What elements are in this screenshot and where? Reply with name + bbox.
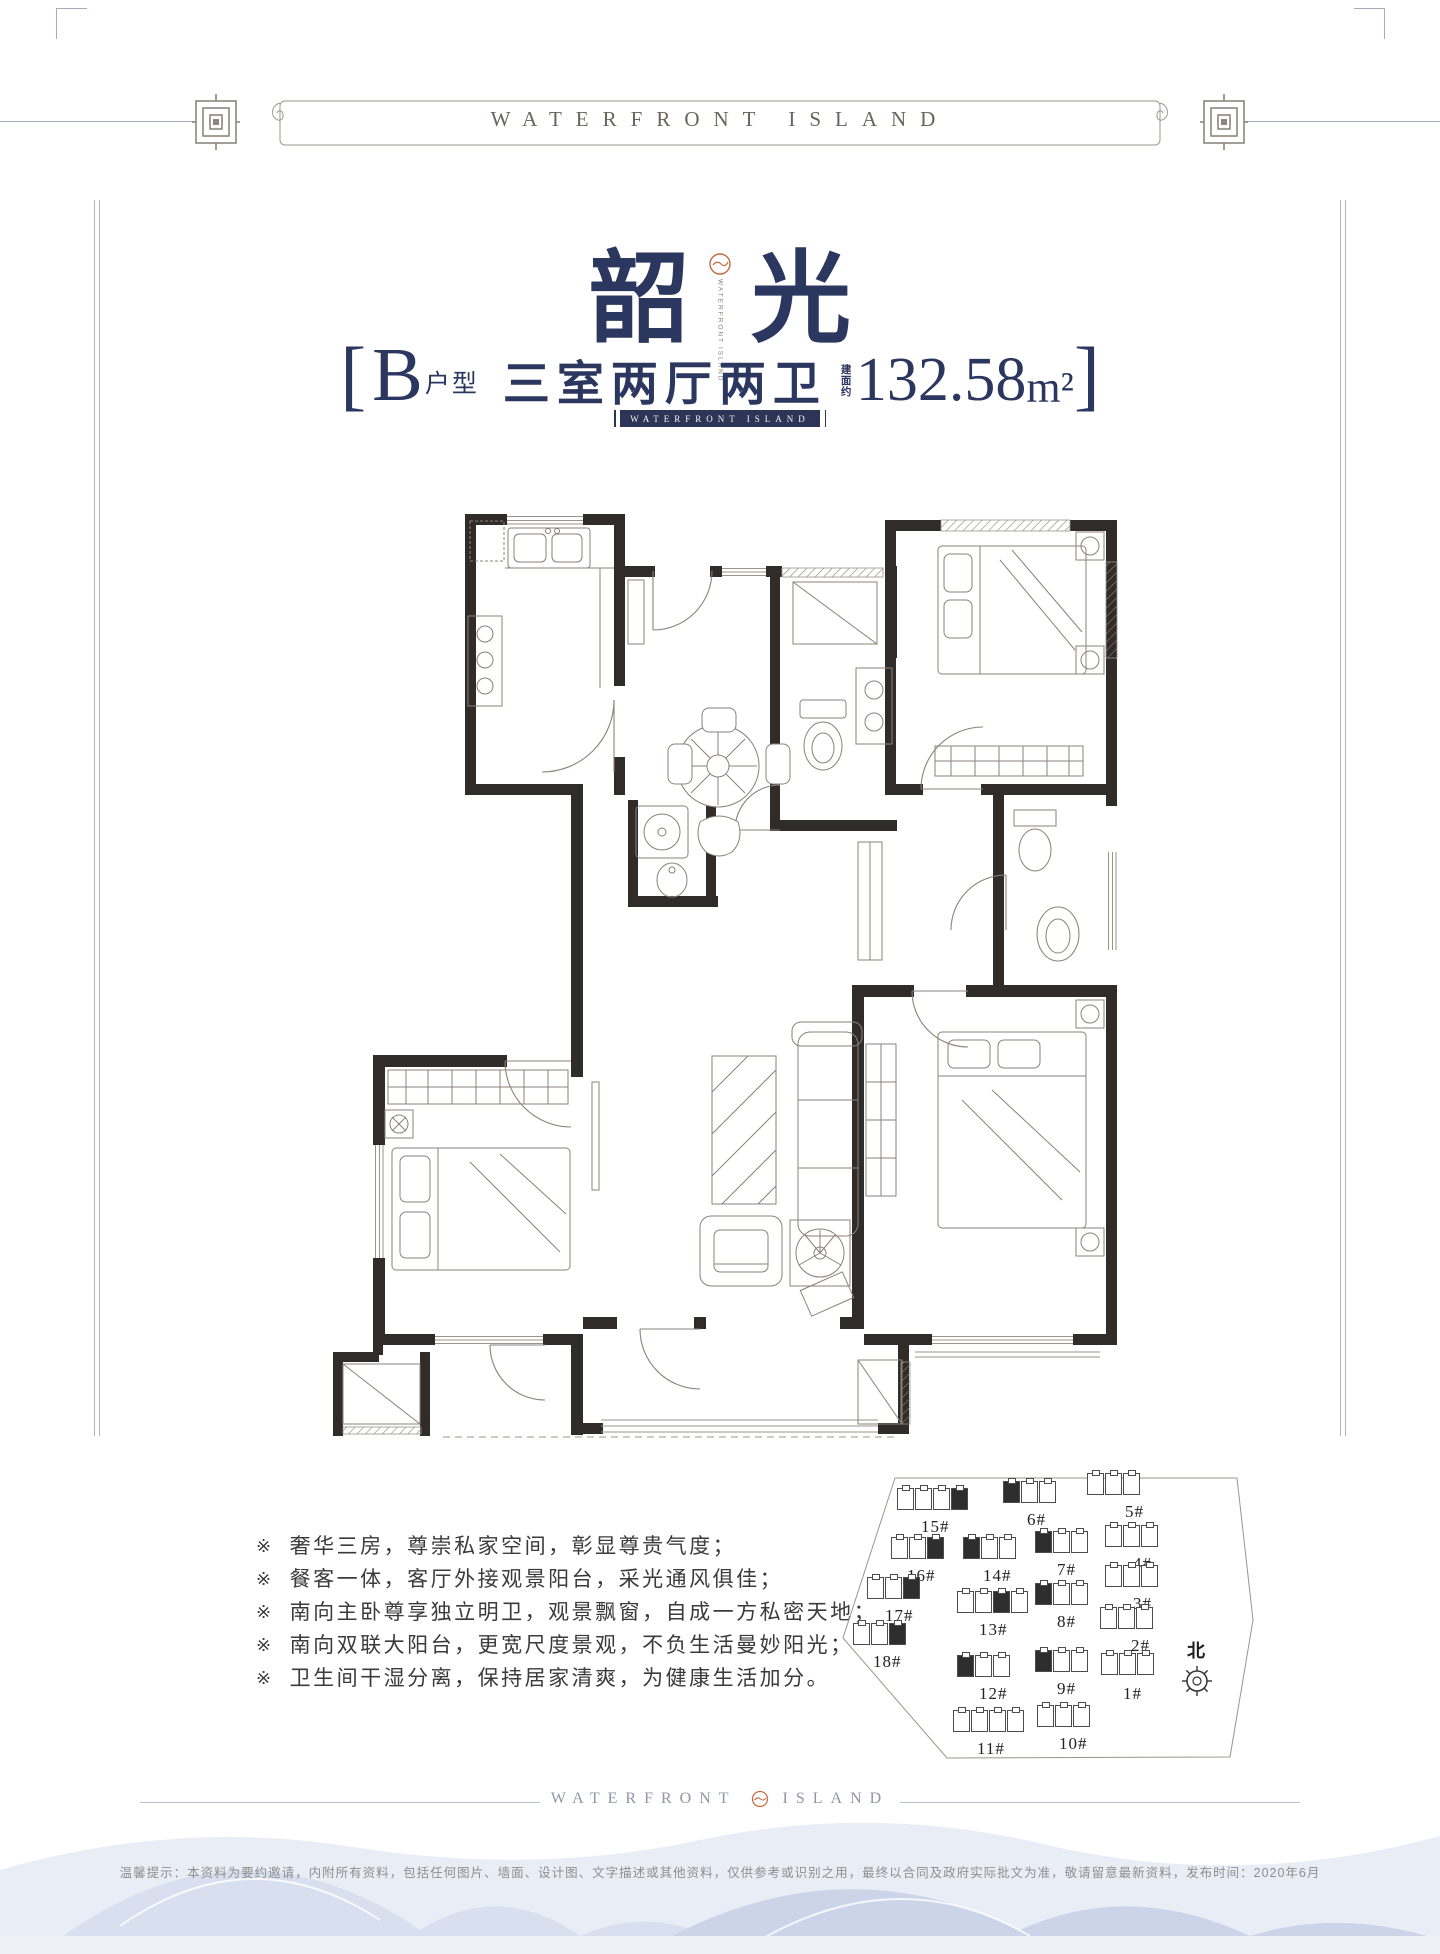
sofa-icon bbox=[798, 1032, 858, 1236]
building-unit bbox=[1071, 1650, 1088, 1672]
storage-room-icon bbox=[793, 582, 877, 644]
building-unit bbox=[1105, 1473, 1122, 1495]
tv-icon bbox=[592, 1082, 599, 1190]
building-unit bbox=[1011, 1591, 1028, 1613]
building-unit bbox=[1119, 1653, 1136, 1675]
armchair-icon bbox=[700, 1216, 782, 1286]
banner-title: WATERFRONT ISLAND bbox=[268, 107, 1172, 132]
building-icon-7 bbox=[1035, 1531, 1088, 1553]
building-icon-3 bbox=[1105, 1565, 1158, 1587]
master-bedroom-icons bbox=[385, 1070, 570, 1270]
knot-ornament-right bbox=[1200, 94, 1248, 150]
unit-letter: B bbox=[372, 345, 423, 406]
building-label: 18# bbox=[873, 1652, 902, 1672]
master-bath-icons bbox=[1014, 810, 1079, 961]
building-unit bbox=[993, 1591, 1010, 1613]
building-icon-17 bbox=[867, 1577, 920, 1599]
entry-cabinet-icon bbox=[628, 580, 644, 644]
area-unit: m² bbox=[1026, 370, 1073, 406]
title-char-right: 光 bbox=[751, 250, 851, 350]
building-unit bbox=[957, 1655, 974, 1677]
building-unit bbox=[1035, 1531, 1052, 1553]
building-unit bbox=[1073, 1705, 1090, 1727]
building-icon-1 bbox=[1101, 1653, 1154, 1675]
unit-word: 户型 bbox=[425, 364, 479, 400]
building-label: 5# bbox=[1125, 1502, 1144, 1522]
footer-logo-icon bbox=[751, 1790, 769, 1808]
building-icon-18 bbox=[853, 1623, 906, 1645]
building-unit bbox=[1123, 1565, 1140, 1587]
building-unit bbox=[1053, 1650, 1070, 1672]
building-icon-11 bbox=[953, 1710, 1024, 1732]
feature-text: 卫生间干湿分离，保持居家清爽，为健康生活加分。 bbox=[290, 1668, 831, 1689]
toilet-icon bbox=[800, 700, 846, 770]
frame-corner-top-left bbox=[56, 8, 87, 39]
ribbon-banner: WATERFRONT ISLAND bbox=[620, 410, 820, 427]
building-icon-5 bbox=[1087, 1473, 1140, 1495]
building-label: 14# bbox=[983, 1566, 1012, 1586]
unit-subtitle: [ B 户型 三室两厅两卫 建面约 132.58 m² ] bbox=[0, 345, 1440, 406]
feature-marker: ※ bbox=[256, 1668, 274, 1689]
building-unit bbox=[1053, 1531, 1070, 1553]
building-unit bbox=[1101, 1653, 1118, 1675]
building-unit bbox=[927, 1537, 944, 1559]
building-label: 1# bbox=[1123, 1684, 1142, 1704]
footer-brand-left: WATERFRONT bbox=[551, 1790, 737, 1808]
feature-marker: ※ bbox=[256, 1602, 274, 1623]
banner-rule-right bbox=[1246, 121, 1440, 122]
building-unit bbox=[975, 1655, 992, 1677]
building-unit bbox=[1136, 1607, 1153, 1629]
building-unit bbox=[1105, 1565, 1122, 1587]
feature-item: ※奢华三房，尊崇私家空间，彰显尊贵气度； bbox=[256, 1536, 877, 1557]
building-unit bbox=[891, 1537, 908, 1559]
feature-item: ※南向主卧尊享独立明卫，观景飘窗，自成一方私密天地； bbox=[256, 1602, 877, 1623]
building-icon-8 bbox=[1035, 1583, 1088, 1605]
building-unit bbox=[1035, 1650, 1052, 1672]
building-label: 9# bbox=[1057, 1679, 1076, 1699]
building-unit bbox=[1055, 1705, 1072, 1727]
title-char-left: 韶 bbox=[589, 250, 689, 350]
building-icon-6 bbox=[1003, 1481, 1056, 1503]
building-unit bbox=[971, 1710, 988, 1732]
building-unit bbox=[1100, 1607, 1117, 1629]
mountain-art bbox=[0, 1740, 1440, 1954]
feature-text: 餐客一体，客厅外接观景阳台，采光通风俱佳； bbox=[290, 1569, 784, 1590]
bracket-open: [ bbox=[340, 345, 366, 406]
building-icon-13 bbox=[957, 1591, 1028, 1613]
building-icon-14 bbox=[963, 1537, 1016, 1559]
area-label: 建面约 bbox=[841, 365, 854, 398]
building-unit bbox=[1137, 1653, 1154, 1675]
building-unit bbox=[957, 1591, 974, 1613]
compass-wheel-icon bbox=[1179, 1663, 1215, 1699]
building-unit bbox=[933, 1488, 950, 1510]
feature-item: ※餐客一体，客厅外接观景阳台，采光通风俱佳； bbox=[256, 1569, 877, 1590]
building-unit bbox=[1141, 1565, 1158, 1587]
feature-marker: ※ bbox=[256, 1569, 274, 1590]
building-icon-12 bbox=[957, 1655, 1010, 1677]
building-unit bbox=[1035, 1583, 1052, 1605]
building-unit bbox=[1021, 1481, 1038, 1503]
brand-vertical-text-1: WATERFRONT bbox=[717, 279, 724, 344]
area-value: 132.58 bbox=[856, 356, 1027, 406]
building-unit bbox=[963, 1537, 980, 1559]
kitchen-sink-icon bbox=[508, 528, 590, 568]
brand-circle-icon bbox=[708, 252, 732, 276]
building-unit bbox=[1141, 1525, 1158, 1547]
living-room-icons bbox=[592, 1022, 862, 1316]
building-unit bbox=[853, 1623, 870, 1645]
laundry-icon bbox=[636, 806, 688, 897]
feature-list: ※奢华三房，尊崇私家空间，彰显尊贵气度；※餐客一体，客厅外接观景阳台，采光通风俱… bbox=[256, 1536, 877, 1701]
bracket-close: ] bbox=[1074, 345, 1100, 406]
building-unit bbox=[975, 1591, 992, 1613]
building-unit bbox=[981, 1537, 998, 1559]
building-icon-16 bbox=[891, 1537, 944, 1559]
building-unit bbox=[897, 1488, 914, 1510]
building-unit bbox=[867, 1577, 884, 1599]
north-label: 北 bbox=[1179, 1637, 1215, 1663]
footer-brand: WATERFRONT ISLAND bbox=[0, 1790, 1440, 1808]
plan-windows bbox=[376, 517, 1117, 1438]
building-label: 8# bbox=[1057, 1612, 1076, 1632]
building-unit bbox=[951, 1488, 968, 1510]
building-unit bbox=[1087, 1473, 1104, 1495]
building-unit bbox=[993, 1655, 1010, 1677]
plan-walls bbox=[333, 514, 1117, 1436]
feature-item: ※南向双联大阳台，更宽尺度景观，不负生活曼妙阳光； bbox=[256, 1635, 877, 1656]
building-unit bbox=[1071, 1583, 1088, 1605]
disclaimer-text: 温馨提示：本资料为要约邀请，内附所有资料，包括任何图片、墙面、设计图、文字描述或… bbox=[0, 1862, 1440, 1881]
banner-rule-left bbox=[0, 121, 194, 122]
building-unit bbox=[885, 1577, 902, 1599]
building-unit bbox=[1123, 1473, 1140, 1495]
building-icon-9 bbox=[1035, 1650, 1088, 1672]
building-label: 13# bbox=[979, 1620, 1008, 1640]
building-unit bbox=[999, 1537, 1016, 1559]
feature-marker: ※ bbox=[256, 1536, 274, 1557]
feature-item: ※卫生间干湿分离，保持居家清爽，为健康生活加分。 bbox=[256, 1668, 877, 1689]
north-indicator: 北 bbox=[1179, 1637, 1215, 1704]
feature-text: 南向双联大阳台，更宽尺度景观，不负生活曼妙阳光； bbox=[290, 1635, 854, 1656]
building-unit bbox=[871, 1623, 888, 1645]
plan-doors bbox=[490, 571, 1006, 1400]
building-unit bbox=[909, 1537, 926, 1559]
building-icon-4 bbox=[1105, 1525, 1158, 1547]
building-unit bbox=[903, 1577, 920, 1599]
building-icon-2 bbox=[1100, 1607, 1153, 1629]
building-unit bbox=[915, 1488, 932, 1510]
building-icon-10 bbox=[1037, 1705, 1090, 1727]
building-label: 12# bbox=[979, 1684, 1008, 1704]
building-label: 7# bbox=[1057, 1560, 1076, 1580]
knot-ornament-left bbox=[192, 94, 240, 150]
bedroom-se-icons bbox=[866, 1000, 1104, 1256]
unit-rooms: 三室两厅两卫 bbox=[503, 364, 827, 406]
bedroom-ne-icons bbox=[935, 532, 1104, 776]
building-unit bbox=[1039, 1481, 1056, 1503]
feature-text: 奢华三房，尊崇私家空间，彰显尊贵气度； bbox=[290, 1536, 737, 1557]
footer-brand-right: ISLAND bbox=[783, 1790, 890, 1808]
building-unit bbox=[953, 1710, 970, 1732]
building-unit bbox=[1053, 1583, 1070, 1605]
plan-furniture bbox=[343, 521, 1104, 1424]
frame-corner-top-right bbox=[1354, 8, 1385, 39]
building-unit bbox=[1071, 1531, 1088, 1553]
building-unit bbox=[989, 1710, 1006, 1732]
feature-marker: ※ bbox=[256, 1635, 274, 1656]
building-label: 6# bbox=[1027, 1510, 1046, 1530]
floor-plan bbox=[330, 440, 1130, 1452]
building-unit bbox=[1118, 1607, 1135, 1629]
building-icon-15 bbox=[897, 1488, 968, 1510]
building-unit bbox=[889, 1623, 906, 1645]
building-unit bbox=[1037, 1705, 1054, 1727]
building-unit bbox=[1007, 1710, 1024, 1732]
feature-text: 南向主卧尊享独立明卫，观景飘窗，自成一方私密天地； bbox=[290, 1602, 878, 1623]
building-unit bbox=[1003, 1481, 1020, 1503]
building-unit bbox=[1105, 1525, 1122, 1547]
building-unit bbox=[1123, 1525, 1140, 1547]
